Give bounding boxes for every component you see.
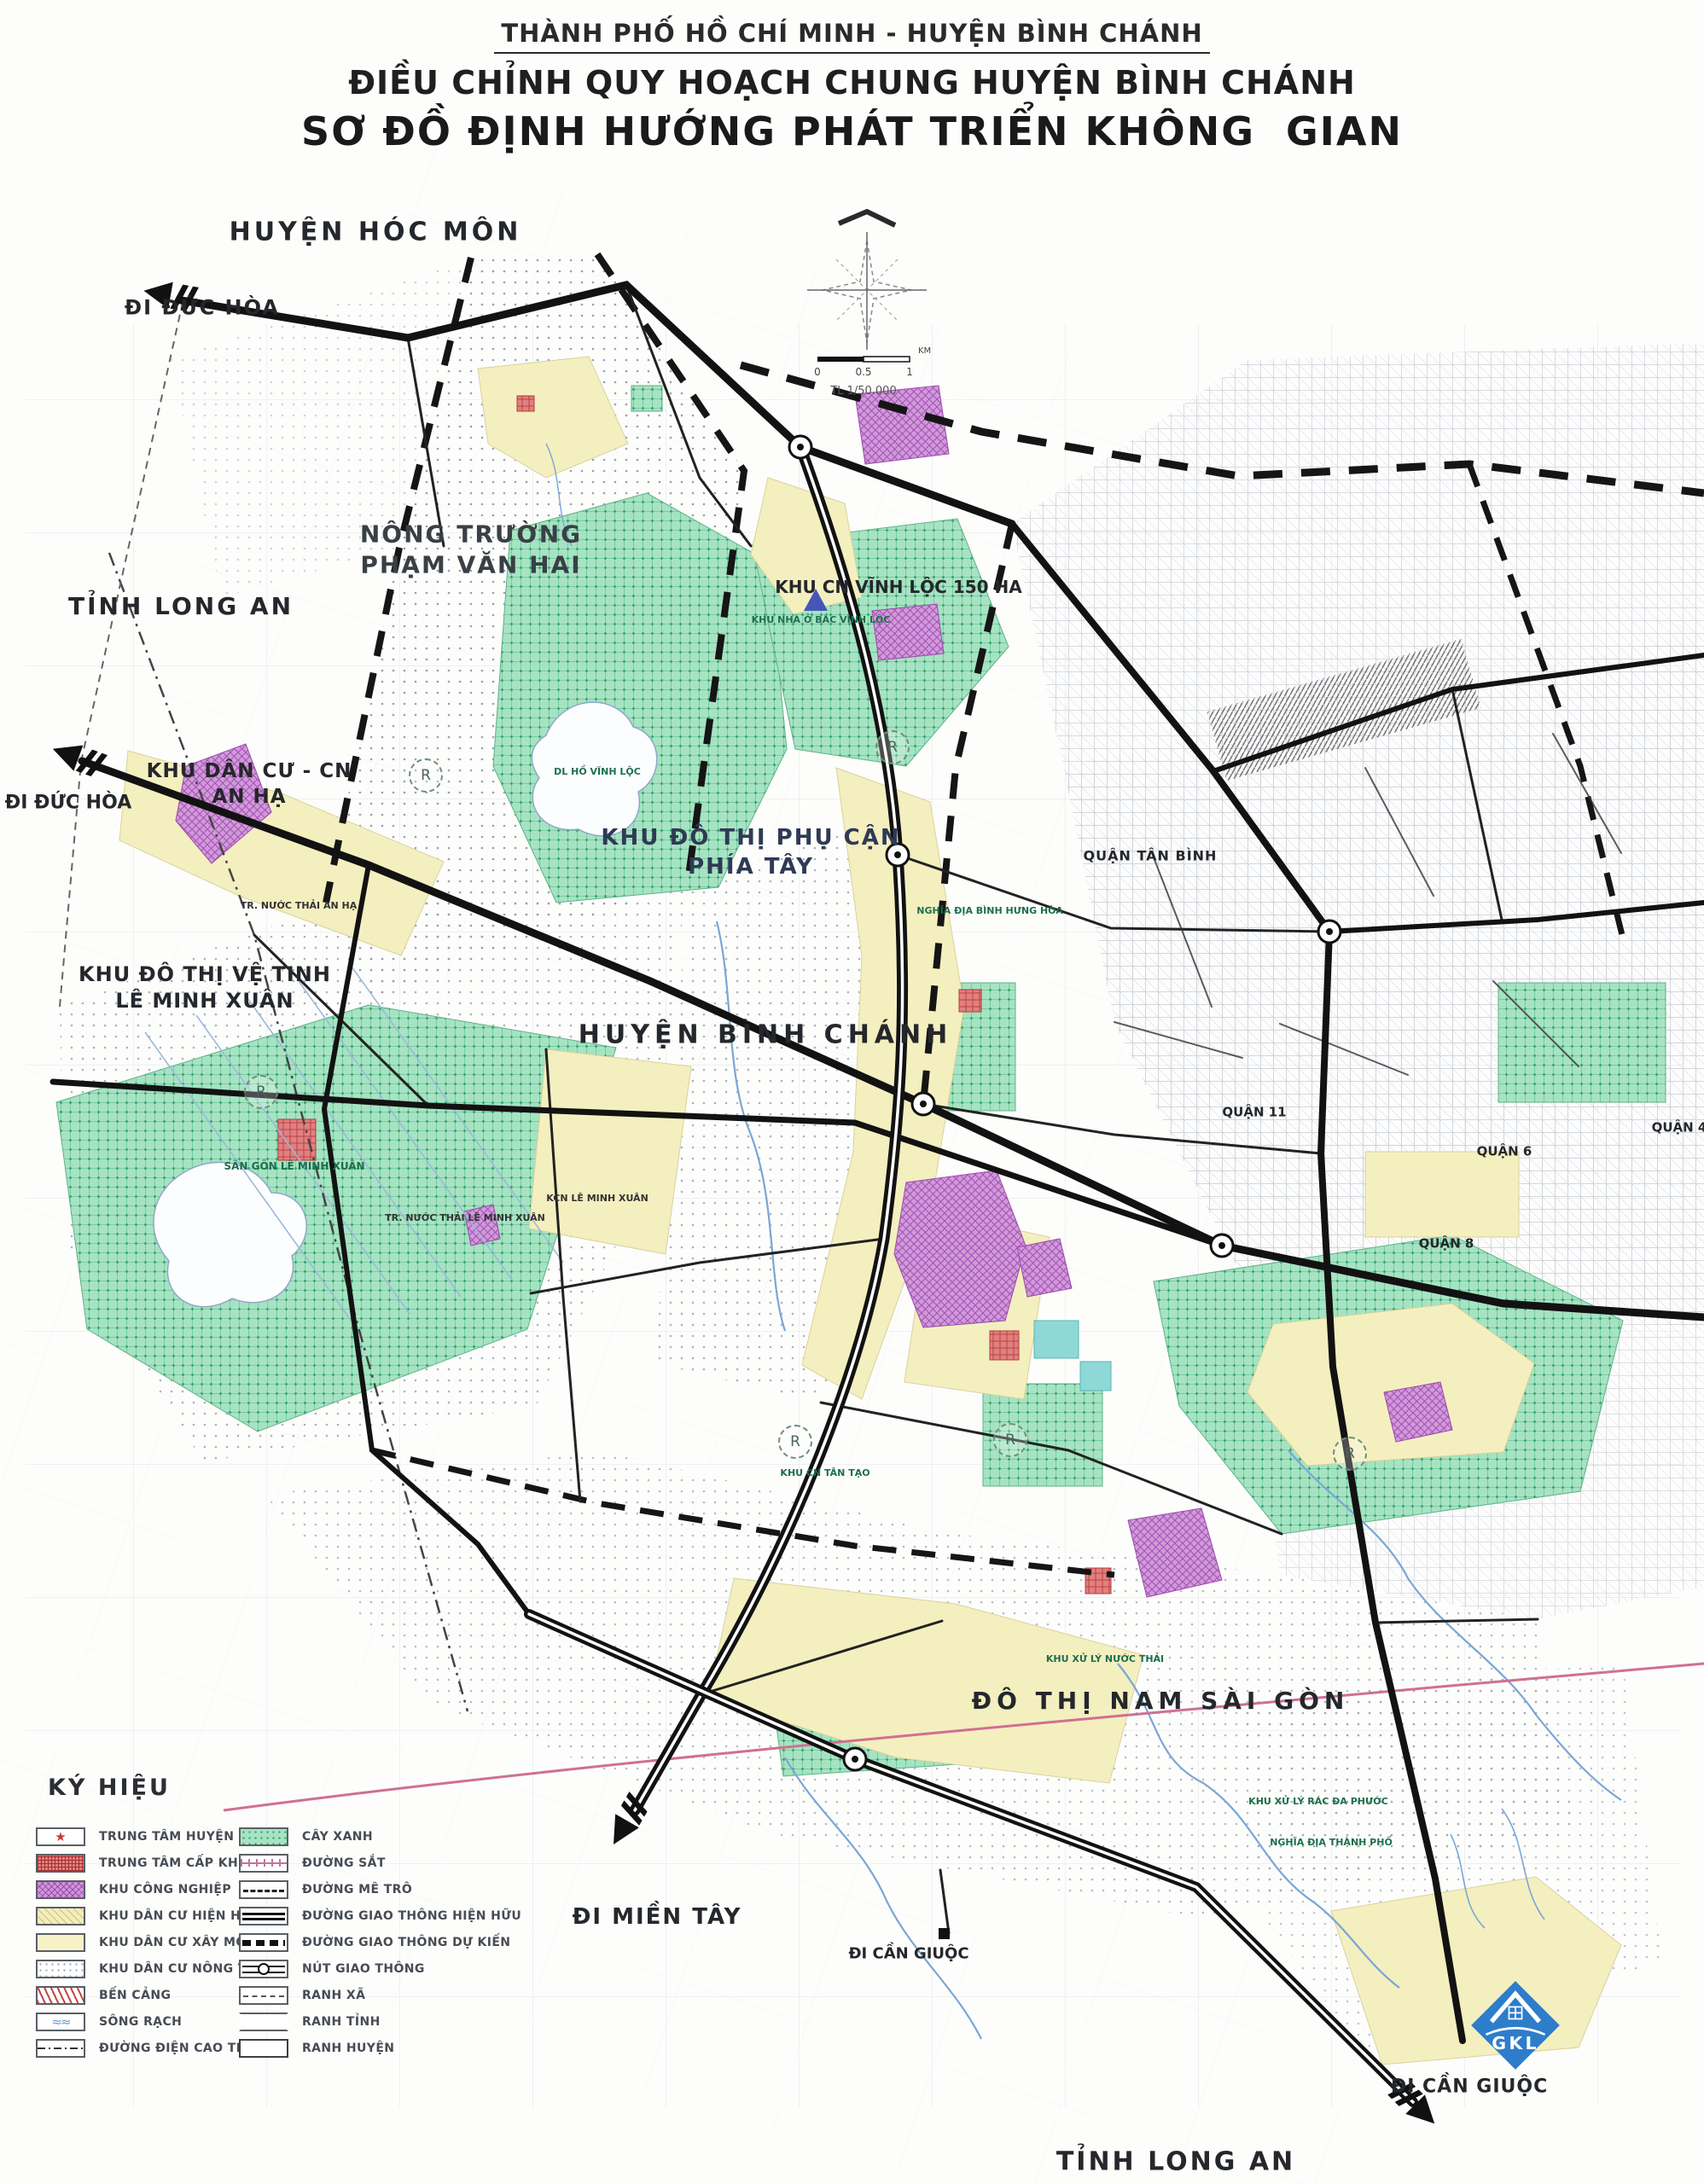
legend-swatch (36, 1827, 85, 1846)
gkl-logo: GKL (1469, 1979, 1562, 2071)
legend-label: KHU DÂN CƯ HIỆN HỮU (99, 1909, 261, 1923)
legend-item: KHU DÂN CƯ XÂY MỚI (36, 1929, 239, 1955)
scale-unit: KM (918, 346, 931, 356)
legend-swatch (239, 2039, 288, 2058)
legend-swatch (239, 2013, 288, 2031)
map-subtitle: SƠ ĐỒ ĐỊNH HƯỚNG PHÁT TRIỂN KHÔNG GIAN (0, 108, 1704, 154)
legend-swatch (239, 1854, 288, 1873)
legend-column-left: TRUNG TÂM HUYỆN TRUNG TÂM CẤP KHU VỰC KH… (36, 1823, 239, 2061)
north-arrow-icon (839, 212, 895, 225)
legend-swatch (36, 1907, 85, 1926)
legend-item: RANH TỈNH (239, 2008, 597, 2035)
legend-label: RANH HUYỆN (302, 2042, 394, 2055)
legend-item: ĐƯỜNG GIAO THÔNG DỰ KIẾN (239, 1929, 597, 1955)
legend-label: BẾN CẢNG (99, 1989, 171, 2002)
legend-item: ĐƯỜNG GIAO THÔNG HIỆN HỮU (239, 1902, 597, 1929)
legend-item: ĐƯỜNG MÊ TRÔ (239, 1876, 597, 1902)
legend-item: RANH HUYỆN (239, 2035, 597, 2061)
legend-item: BẾN CẢNG (36, 1982, 239, 2008)
scale-tick: 1 (906, 366, 913, 378)
legend-swatch (36, 1933, 85, 1952)
legend-label: ĐƯỜNG SẮT (302, 1856, 386, 1870)
legend-swatch (239, 1986, 288, 2005)
legend-label: ĐƯỜNG MÊ TRÔ (302, 1883, 412, 1896)
legend-label: CÂY XANH (302, 1830, 373, 1844)
legend-swatch (36, 1854, 85, 1873)
map-supertitle: THÀNH PHỐ HỒ CHÍ MINH - HUYỆN BÌNH CHÁNH (494, 19, 1209, 54)
legend-label: ĐƯỜNG ĐIỆN CAO THẾ (99, 2042, 255, 2055)
legend-item: SÔNG RẠCH (36, 2008, 239, 2035)
legend-swatch (239, 1933, 288, 1952)
legend-label: TRUNG TÂM HUYỆN (99, 1830, 234, 1844)
legend-item: ĐƯỜNG SẮT (239, 1850, 597, 1876)
scale-tick: 0 (814, 366, 821, 378)
legend-swatch (36, 2013, 85, 2031)
legend-swatch (36, 1880, 85, 1899)
scale-bar: 0 0.5 1 KM TL 1/50.000 (814, 346, 931, 398)
legend-label: ĐƯỜNG GIAO THÔNG DỰ KIẾN (302, 1936, 510, 1949)
legend-item: CÂY XANH (239, 1823, 597, 1850)
legend-heading: KÝ HIỆU (48, 1774, 633, 1801)
legend: KÝ HIỆU TRUNG TÂM HUYỆN TRUNG TÂM CẤP KH… (36, 1774, 633, 2061)
legend-item: ĐƯỜNG ĐIỆN CAO THẾ (36, 2035, 239, 2061)
logo-text: GKL (1492, 2033, 1539, 2053)
legend-label: NÚT GIAO THÔNG (302, 1962, 425, 1976)
map-title: ĐIỀU CHỈNH QUY HOẠCH CHUNG HUYỆN BÌNH CH… (0, 64, 1704, 102)
legend-label: RANH XÃ (302, 1989, 365, 2002)
legend-label: KHU CÔNG NGHIỆP (99, 1883, 231, 1896)
legend-item: TRUNG TÂM CẤP KHU VỰC (36, 1850, 239, 1876)
legend-swatch (239, 1880, 288, 1899)
road-end-marker (939, 1928, 950, 1939)
legend-swatch (239, 1907, 288, 1926)
legend-item: KHU CÔNG NGHIỆP (36, 1876, 239, 1902)
legend-swatch (239, 1827, 288, 1846)
legend-item: KHU DÂN CƯ HIỆN HỮU (36, 1902, 239, 1929)
compass-rose: 0 0.5 1 KM TL 1/50.000 (792, 206, 942, 407)
legend-label: KHU DÂN CƯ XÂY MỚI (99, 1936, 252, 1949)
legend-swatch (239, 1960, 288, 1978)
legend-label: SÔNG RẠCH (99, 2015, 182, 2029)
legend-item: NÚT GIAO THÔNG (239, 1955, 597, 1982)
scale-caption: TL 1/50.000 (829, 385, 896, 398)
title-block: THÀNH PHỐ HỒ CHÍ MINH - HUYỆN BÌNH CHÁNH… (0, 19, 1704, 154)
legend-label: ĐƯỜNG GIAO THÔNG HIỆN HỮU (302, 1909, 521, 1923)
legend-label: RANH TỈNH (302, 2015, 381, 2029)
legend-column-right: CÂY XANH ĐƯỜNG SẮT ĐƯỜNG MÊ TRÔ ĐƯỜNG GI… (239, 1823, 597, 2061)
legend-swatch (36, 2039, 85, 2058)
legend-swatch (36, 1986, 85, 2005)
legend-swatch (36, 1960, 85, 1978)
map-sheet: THÀNH PHỐ HỒ CHÍ MINH - HUYỆN BÌNH CHÁNH… (0, 0, 1704, 2184)
legend-item: KHU DÂN CƯ NÔNG THÔN (36, 1955, 239, 1982)
legend-item: TRUNG TÂM HUYỆN (36, 1823, 239, 1850)
scale-tick: 0.5 (855, 366, 871, 378)
logo-window-icon (1509, 2007, 1521, 2018)
legend-item: RANH XÃ (239, 1982, 597, 2008)
